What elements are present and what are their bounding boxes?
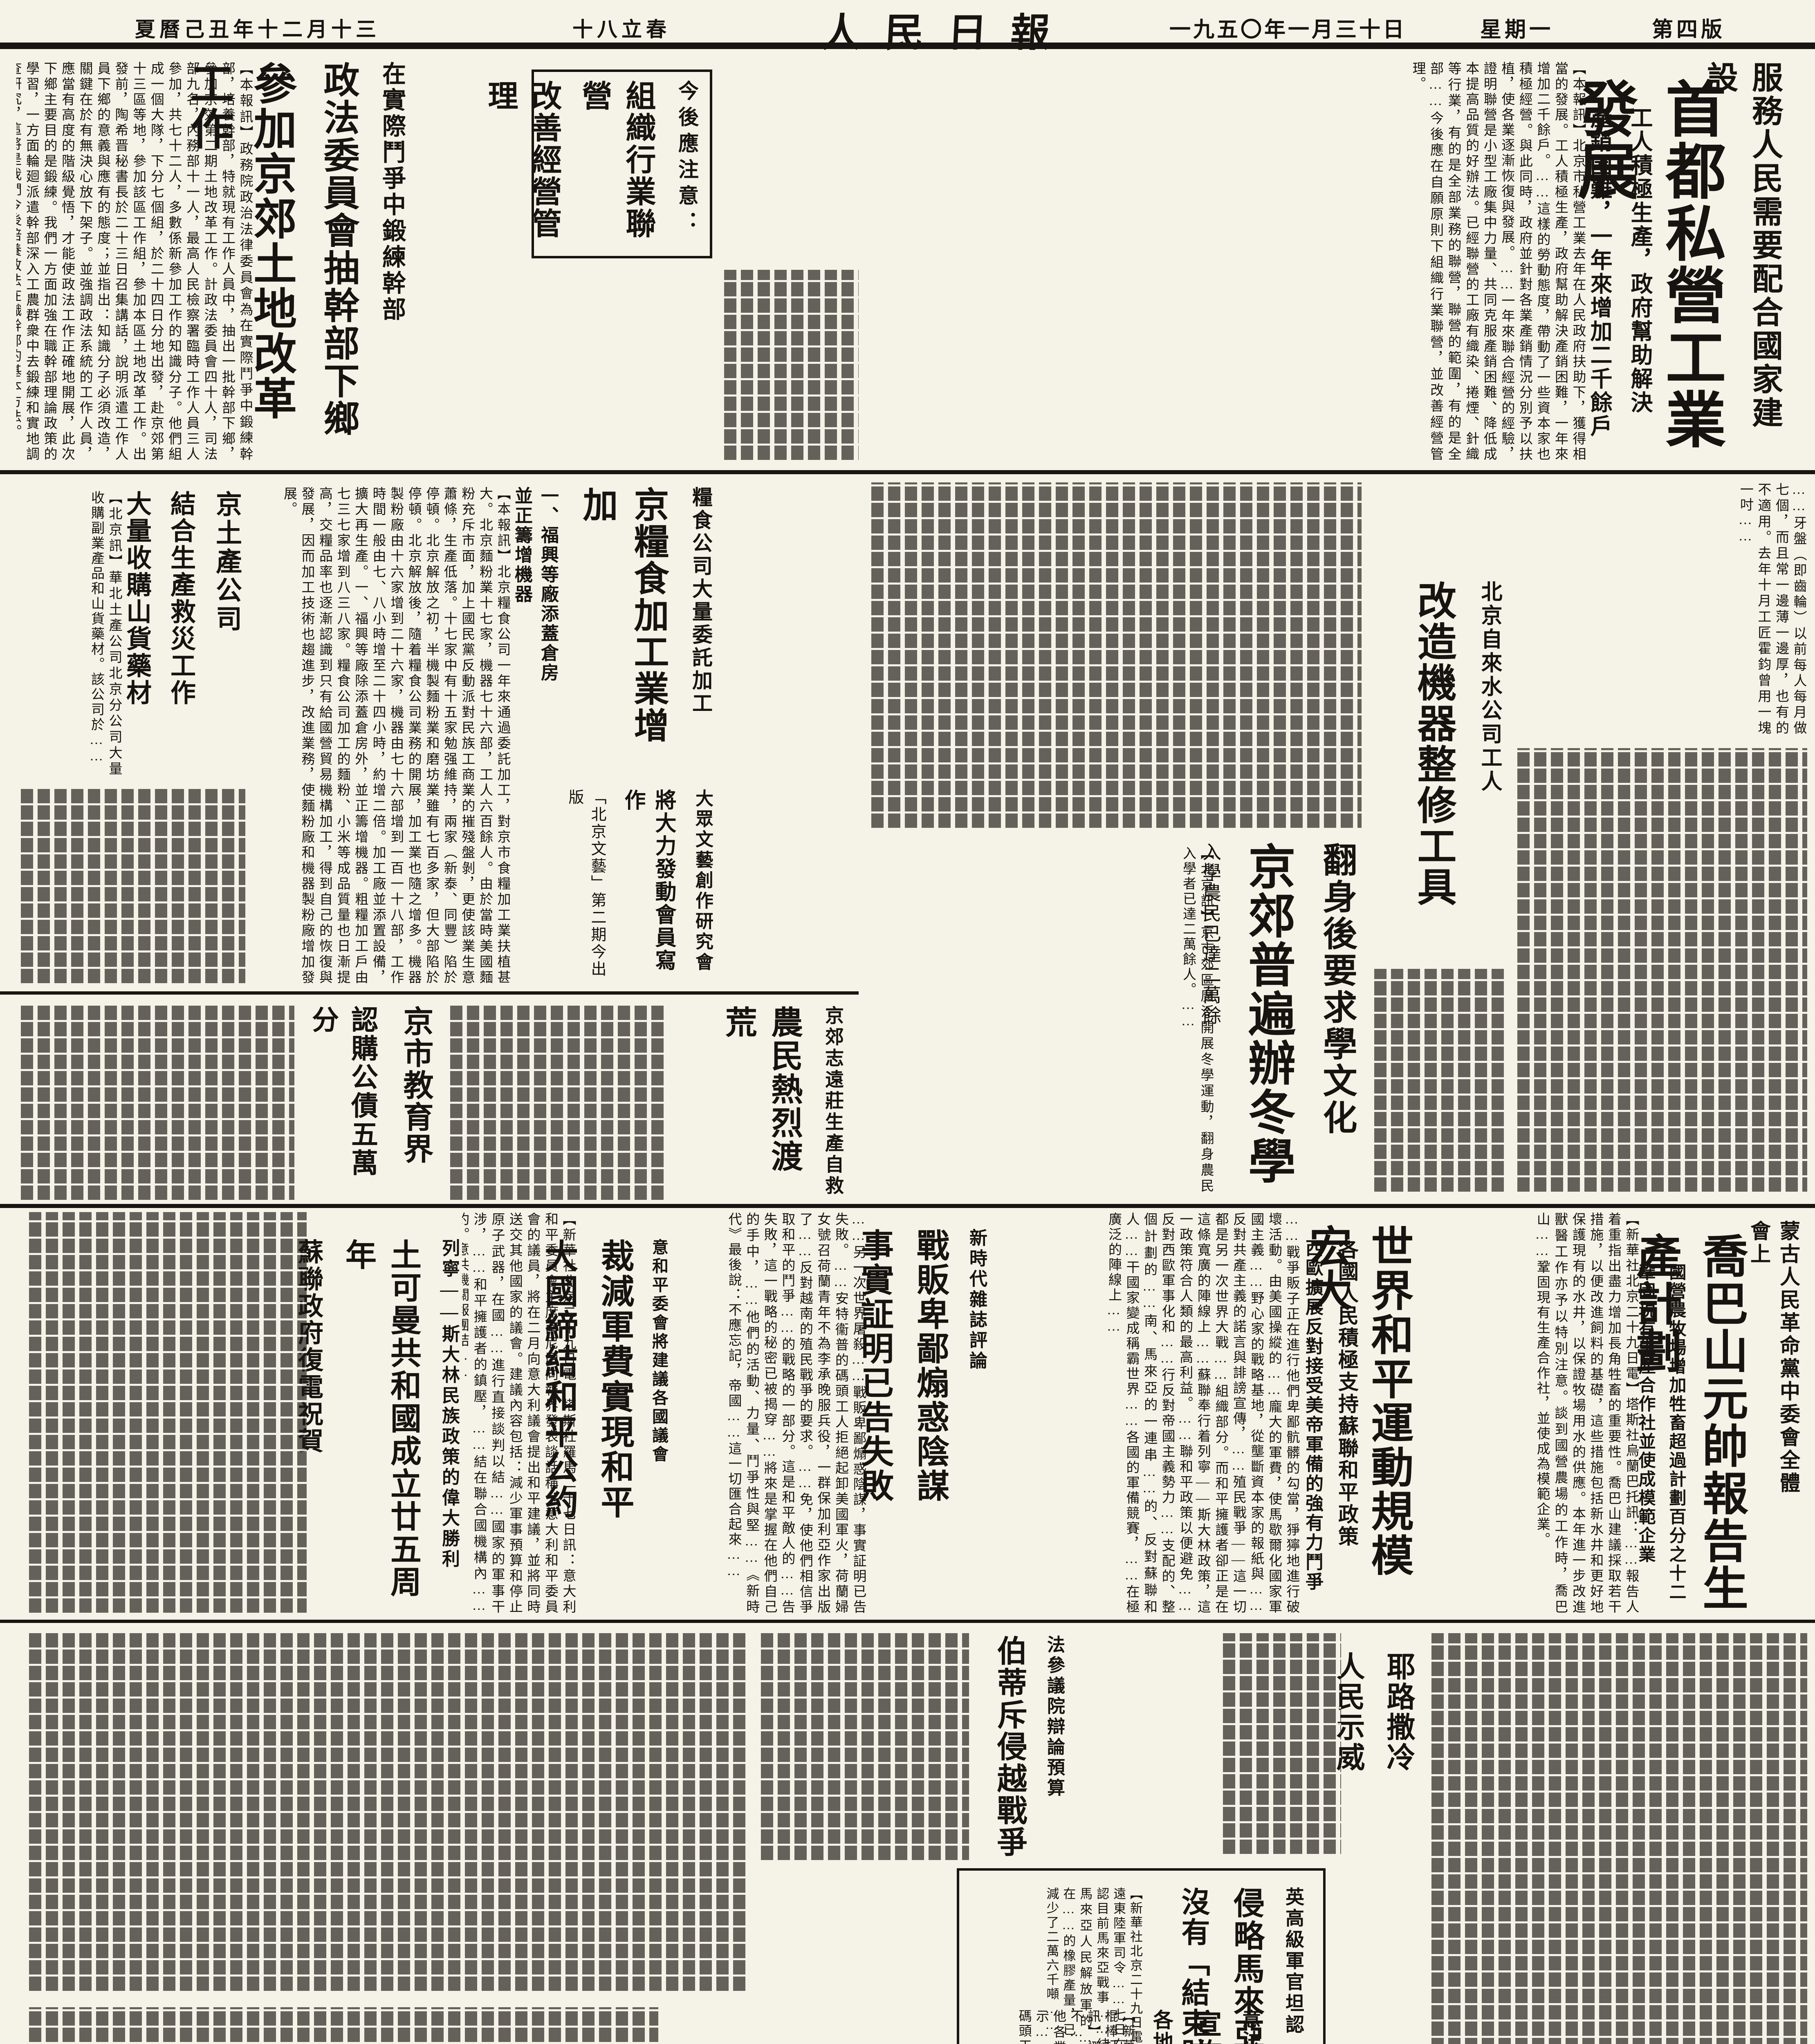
- article-tuchang-headlines: 京土產公司 結合生產救災工作 大量收購山貨藥材: [131, 491, 245, 777]
- article-juxie-headline: 宣佈拒絕起卸戰爭物資: [1185, 2009, 1226, 2044]
- article-juxie-body: 【新華社北京二十九日電】……起卸進行帝國主義戰爭……棍棒打人，示威者數人受傷，並…: [859, 2009, 1137, 2044]
- edition-label: 第四版: [1652, 12, 1725, 43]
- article-shoudu-body-unread: [720, 270, 859, 462]
- article-dongxue-headline: 京郊普遍辦冬學: [1233, 842, 1301, 1194]
- article-malaiya-kicker: 英高級軍官坦認: [1280, 1887, 1307, 2044]
- article-xinshidai-headlines: 新時代雜誌評論 戰販卑鄙煽惑陰謀 事實証明已告失敗: [871, 1228, 989, 1515]
- article-duhuang-body-unread: [446, 1006, 666, 1202]
- article-wenyi-headlines: 大眾文藝創作研究會 將大力發動會員寫作 「北京文藝」第二期今出版: [527, 789, 716, 985]
- inset-line-2: 改善經營管理: [478, 80, 566, 248]
- band2-rule: [0, 991, 859, 995]
- article-tuchang-body-unread: [16, 789, 245, 985]
- masthead: 人民日報: [820, 1, 1075, 58]
- article-wenyi-headline: 將大力發動會員寫作: [617, 789, 679, 985]
- article-zilaishui-body-unread: [1513, 748, 1807, 1194]
- inset-line-1: 組織行業聯營: [572, 80, 660, 248]
- inset-title: 今後應注意：: [672, 80, 702, 248]
- article-zhengfa-headlines: 在實際鬥爭中鍛練幹部 政法委員會抽幹部下鄉 參加京郊土地改革工作: [262, 61, 409, 454]
- article-shoudu-body: 【本報訊】北京市私營工業去年在人民政府扶助下，獲得相當的發展。工人積極生產，政府…: [867, 61, 1586, 462]
- article-zhengfa-headline-1: 政法委員會抽幹部下鄉: [312, 61, 364, 454]
- article-caijian-kicker: 意和平委會將建議各國議會: [647, 1239, 671, 1578]
- article-zilaishui-body: ……牙盤（即齒輪）以前每人每月做七個，而且常一邊薄一邊厚，也有的不適用。去年十月…: [1513, 482, 1807, 736]
- article-liangshi-subhead-1: 一、福興等廠添蓋倉房: [535, 486, 561, 777]
- article-zhengfa-body: 【本報訊】政務院政治法律委員會為在實際鬥爭中鍛練幹部，培養幹部，特就現有工作人員…: [16, 61, 254, 462]
- article-liangshi-headlines: 糧食公司大量委託加工 京糧食加工業增加 一、福興等廠添蓋倉房 並正籌增機器: [519, 486, 716, 777]
- article-liangshi-kicker: 糧食公司大量委託加工: [686, 486, 716, 777]
- article-zilaishui-headlines: 北京自來水公司工人 改造機器整修工具: [1370, 580, 1505, 957]
- article-zhengfa-kicker: 在實際鬥爭中鍛練幹部: [375, 61, 409, 454]
- article-juxie-kicker: 意法荷鐵路航運及碼頭工人: [1236, 2009, 1263, 2044]
- article-shijieheping-subheads: 各國人民積極支持蘇聯和平政策 西歐擴展反對接受美帝軍備的強有力鬥爭: [1304, 1239, 1362, 1607]
- article-tuchang-body: 【北京訊】華北土產公司北京分公司大量收購副業產品和山貨藥材。該公司於……: [16, 491, 123, 777]
- article-tukeman-kicker: 列寧——斯大林民族政策的偉大勝利: [436, 1239, 462, 1607]
- article-shoudu-subheads: 工人積極生產，政府幫助解決 產銷困難，一年來增加二千餘戶: [1595, 106, 1656, 474]
- article-shoudu-headline-col: 首都私營工業發展: [1660, 78, 1734, 511]
- article-tukeman-headline: 土可曼共和國成立廿五周年: [335, 1239, 425, 1607]
- article-bodi-headline: 伯蒂斥侵越戰爭: [987, 1635, 1031, 1864]
- band5-left-unread: [25, 1633, 748, 1993]
- article-tuchang-kicker: 京土產公司: [208, 491, 245, 777]
- article-liangshi-body: 【本報訊】北京糧食公司一年來通過委託加工，對京市食糧加工業扶植甚大。北京麵粉業十…: [254, 486, 511, 985]
- header-rule: [0, 43, 1815, 49]
- article-zilaishui-kicker: 北京自來水公司工人: [1474, 580, 1505, 957]
- article-jiaoyu-headline-2: 認購公債五萬分: [303, 1006, 381, 1202]
- article-dongxue-kicker: 翻身後要求學文化: [1312, 842, 1362, 1194]
- article-qiaobashan-headline-col: 喬巴山元帥報告生產計劃: [1689, 1233, 1754, 1621]
- article-shoudu-subhead-1: 工人積極生產，政府幫助解決: [1624, 106, 1656, 474]
- article-caijian-body: 【新華社北京二十九日電】塔斯社羅馬二十七日訊：意大利和平委員會主席南尼頃向報界發…: [462, 1212, 577, 1615]
- article-juxie-headlines: 意法荷鐵路航運及碼頭工人 宣佈拒絕起卸戰爭物資 各地工人紛紛起來罷工: [1141, 2009, 1263, 2044]
- article-tuchang-headline-1: 結合生產救災工作: [162, 491, 199, 777]
- article-qiaobashan-subhead-1: 國營農牧場增加牲畜超過計劃百分之十二: [1664, 1263, 1689, 1611]
- band2-unread-columns: [867, 482, 1362, 830]
- publication-date: 一九五〇年一月三十日: [1169, 12, 1407, 43]
- article-shoudu-subhead-2: 產銷困難，一年來增加二千餘戶: [1583, 106, 1615, 474]
- article-liangshi-subhead-2: 並正籌增機器: [509, 486, 535, 777]
- article-caijian-headline-1: 裁減軍費實現和平: [590, 1239, 639, 1578]
- band5-right-unread: [1427, 1633, 1807, 2044]
- article-jiaoyu-headline-1: 京市教育界: [394, 1006, 437, 1202]
- article-shoudu-kicker-col: 服務人民需要配合國家建設: [1738, 61, 1787, 454]
- article-tukeman-body-unread: [25, 1212, 307, 1615]
- article-liangshi-headline: 京糧食加工業增加: [572, 486, 674, 777]
- article-wenyi-note: 「北京文藝」第二期今出版: [563, 789, 608, 985]
- shoudu-inset-box: 今後應注意： 組織行業聯營 改善經營管理: [532, 69, 712, 258]
- article-wenyi-kicker: 大眾文藝創作研究會: [689, 789, 716, 985]
- article-shijieheping-subhead-1: 各國人民積極支持蘇聯和平政策: [1332, 1239, 1362, 1607]
- article-yelusaleng-headlines: 耶路撒冷 人民示威: [1345, 1652, 1419, 1823]
- article-shijieheping-headline-col: 世界和平運動規模宏大: [1362, 1224, 1419, 1613]
- article-bodi-body-unread: [756, 1633, 969, 1862]
- article-shijieheping-subhead-2: 西歐擴展反對接受美帝軍備的強有力鬥爭: [1299, 1239, 1326, 1607]
- article-duhuang-headlines: 京郊志遠莊生產自救 農民熱烈渡荒: [675, 1006, 846, 1202]
- weekday: 星期一: [1480, 12, 1554, 43]
- article-xinshidai-body: ……另一次世界屠殺……戰販卑鄙煽惑陰謀，事實証明已告失敗。……安特衞普的碼頭工人…: [675, 1212, 867, 1615]
- article-tuchang-headline-2: 大量收購山貨藥材: [118, 491, 155, 777]
- band4-rule: [0, 1620, 1815, 1623]
- solar-term: 十八立春: [572, 13, 671, 43]
- band6-left-unread: [25, 2007, 658, 2044]
- band2-unread-columns-2: [1370, 969, 1505, 1194]
- article-bodi-kicker: 法參議院辯論預算: [1041, 1635, 1067, 1864]
- article-qiaobashan-body: 【新華社北京二十九日電】塔斯社烏蘭巴托訊：……報告人着重指出盡力增加長角牲畜的重…: [1419, 1212, 1640, 1615]
- article-bodi-headlines: 法參議院辯論預算 伯蒂斥侵越戰爭: [973, 1635, 1067, 1864]
- article-zilaishui-headline: 改造機器整修工具: [1405, 580, 1462, 957]
- article-jiaoyu-headlines: 京市教育界 認購公債五萬分: [303, 1006, 437, 1202]
- article-xinshidai-headline-1: 戰販卑鄙煽惑陰謀: [906, 1228, 953, 1515]
- article-xinshidai-kicker: 新時代雜誌評論: [963, 1228, 989, 1515]
- article-qiaobashan-kicker-col: 蒙古人民革命黨中委會全體會上: [1758, 1220, 1803, 1515]
- article-dongxue-headlines: 翻身後要求學文化 京郊普遍辦冬學 入學農民已達二萬餘: [1223, 842, 1362, 1194]
- band3-rule: [0, 1204, 1815, 1208]
- lunar-date: 夏曆己丑年十二月十三: [135, 13, 380, 43]
- article-duhuang-headline: 農民熱烈渡荒: [716, 1006, 807, 1202]
- band1-rule: [0, 470, 1815, 474]
- article-caijian-headlines: 意和平委會將建議各國議會 裁減軍費實現和平 大國締結和平公約: [577, 1239, 671, 1578]
- article-shijieheping-body: ……戰爭販子正在進行他們卑鄙骯髒的勾當，猙獰地進行破壞活動。由美國操縱的……龐大…: [994, 1212, 1300, 1615]
- newspaper-page: 夏曆己丑年十二月十三 十八立春 人民日報 一九五〇年一月三十日 星期一 第四版 …: [0, 0, 1815, 2044]
- article-duhuang-kicker: 京郊志遠莊生產自救: [819, 1006, 846, 1202]
- article-qiaobashan-subheads: 國營農牧場增加牲畜超過計劃百分之十二 鞏固現有生產合作社並使成模範企業: [1640, 1263, 1689, 1611]
- article-juxie-subhead: 各地工人紛紛起來罷工: [1147, 2009, 1176, 2044]
- article-tukeman-headlines: 列寧——斯大林民族政策的偉大勝利 土可曼共和國成立廿五周年 蘇聯政府復電祝賀: [311, 1239, 462, 1607]
- article-dongxue-body: 【北京訊】京市郊區廣泛開展冬學運動，翻身農民入學者已達二萬餘人。……: [867, 846, 1214, 1194]
- yelusaleng-body-unread: [1218, 1633, 1341, 1856]
- article-jiaoyu-body-unread: [16, 1006, 294, 1202]
- article-yelusaleng-headline-1: 耶路撒冷: [1378, 1652, 1419, 1823]
